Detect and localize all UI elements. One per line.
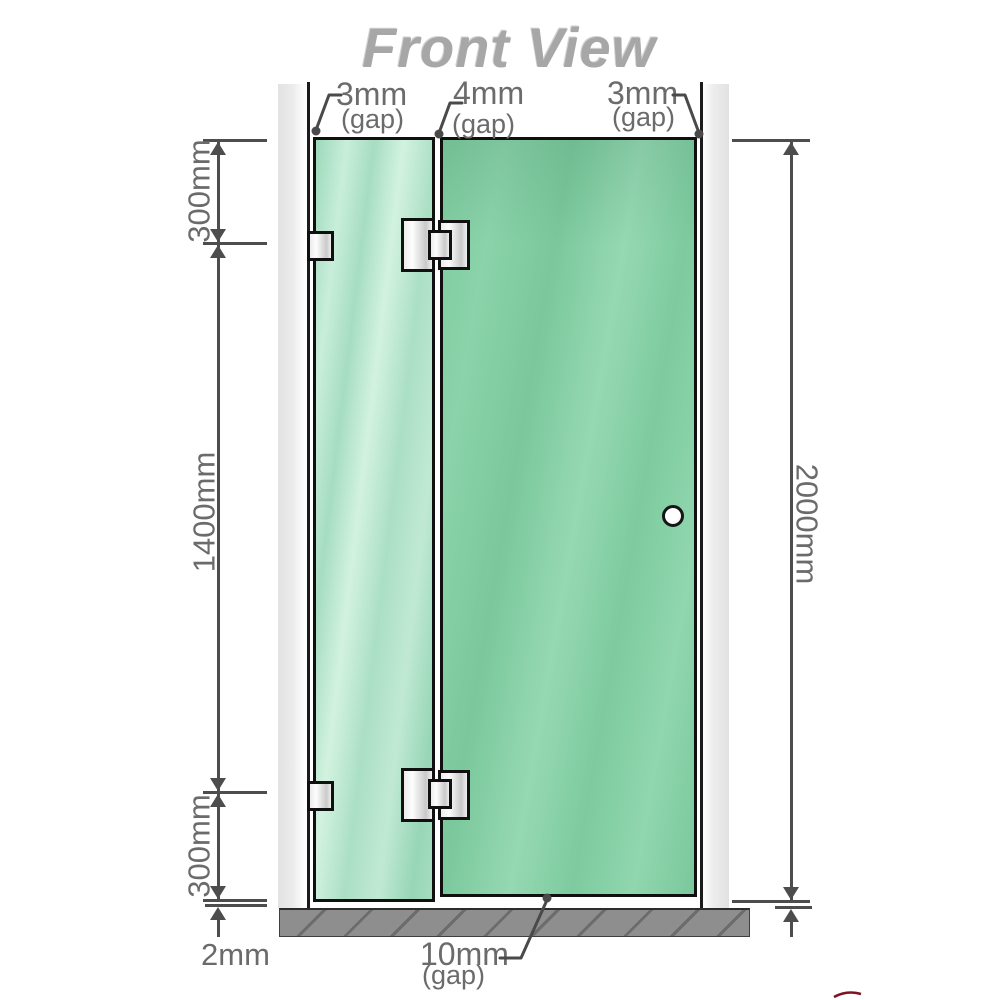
logo-mark-fragment: [834, 993, 861, 997]
gap-note-left: (gap): [341, 106, 404, 133]
arrow-up-icon: [783, 909, 799, 922]
dim-line-300-bottom: [217, 794, 220, 899]
diagram-title: Front View: [362, 20, 656, 76]
gap-label-middle: 4mm: [453, 77, 524, 109]
hinge-bottom-pivot-block: [428, 779, 452, 809]
front-view-diagram: Front View 300mm 1400mm 300mm 2mm 2: [0, 0, 1000, 1000]
hinge-top-pivot-block: [428, 230, 452, 260]
dim-label-300-bottom: 300mm: [184, 794, 215, 897]
dim-line-2mm-stem: [217, 920, 220, 937]
gap-note-right: (gap): [612, 104, 675, 131]
dim-tick-right-bottom: [732, 900, 810, 903]
arrow-down-icon: [210, 778, 226, 791]
dim-label-300-top: 300mm: [184, 139, 215, 242]
arrow-down-icon: [783, 887, 799, 900]
right-wall: [701, 84, 729, 908]
gap-note-middle: (gap): [452, 111, 515, 138]
arrow-up-icon: [210, 245, 226, 258]
floor-base-bar: [279, 908, 750, 937]
wall-bracket-bottom: [307, 781, 334, 811]
right-wall-edge-line: [700, 82, 703, 908]
wall-bracket-top: [307, 231, 334, 261]
left-wall: [278, 84, 306, 908]
arrow-up-icon: [783, 142, 799, 155]
dim-label-2000: 2000mm: [792, 464, 823, 585]
dim-label-2mm: 2mm: [201, 939, 270, 970]
gap-note-door-bottom: (gap): [422, 962, 485, 989]
leader-dot: [312, 127, 321, 136]
dim-line-300-top: [217, 142, 220, 242]
dim-tick-glass-bottom: [203, 899, 267, 902]
dim-label-1400: 1400mm: [189, 452, 220, 573]
glass-door-panel: [440, 137, 697, 897]
door-knob: [662, 505, 684, 527]
dim-line-right-base-stem: [790, 922, 793, 937]
arrow-up-icon: [210, 907, 226, 920]
